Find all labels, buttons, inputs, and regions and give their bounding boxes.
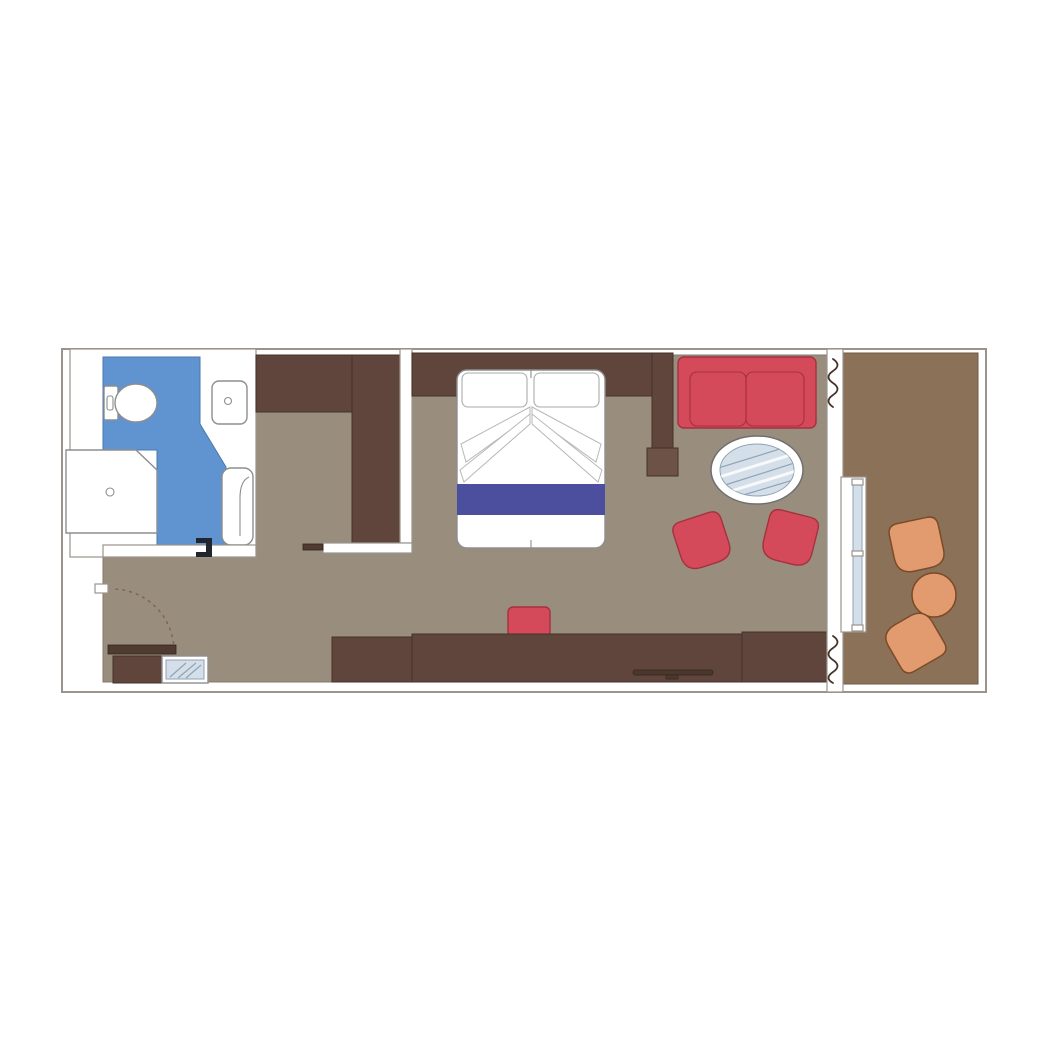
toilet — [115, 384, 157, 422]
entry-cabinet — [113, 656, 162, 683]
bedside-table — [647, 448, 678, 476]
sliding-glass-door-panel-2 — [853, 555, 862, 625]
sofa-base — [678, 357, 816, 428]
tv — [633, 670, 713, 675]
pillow-right — [534, 373, 599, 407]
pillow-left — [462, 373, 527, 407]
floorplan-canvas — [0, 0, 1042, 1042]
door-frame-middle — [852, 551, 863, 556]
sofa — [678, 357, 816, 428]
bathtub — [222, 468, 253, 545]
door-frame-bottom — [852, 625, 863, 631]
dressing-wall — [400, 349, 412, 543]
entry-door — [108, 645, 176, 654]
washbasin — [212, 381, 247, 424]
desk-cabinet-left — [332, 637, 412, 682]
partition-column — [652, 353, 673, 448]
sliding-glass-door-panel-1 — [853, 485, 862, 551]
balcony-table — [912, 573, 956, 617]
double-bed — [457, 370, 605, 548]
stool — [508, 607, 550, 637]
bed-runner — [457, 484, 605, 515]
desk-cabinet-right — [742, 632, 827, 682]
door-frame-top — [852, 479, 863, 485]
bathroom-door — [103, 545, 256, 557]
tv-mount — [666, 675, 678, 679]
dressing-door — [323, 543, 412, 553]
wardrobe-column — [352, 355, 400, 543]
floor-plan — [0, 0, 1042, 1042]
dressing-door-handle — [303, 544, 323, 550]
table-glass — [720, 444, 794, 496]
bathroom — [66, 349, 256, 557]
shower — [66, 450, 157, 533]
entry-door-jamb — [95, 584, 108, 593]
wardrobe — [256, 355, 352, 412]
luggage-glass-shelf — [162, 656, 208, 683]
